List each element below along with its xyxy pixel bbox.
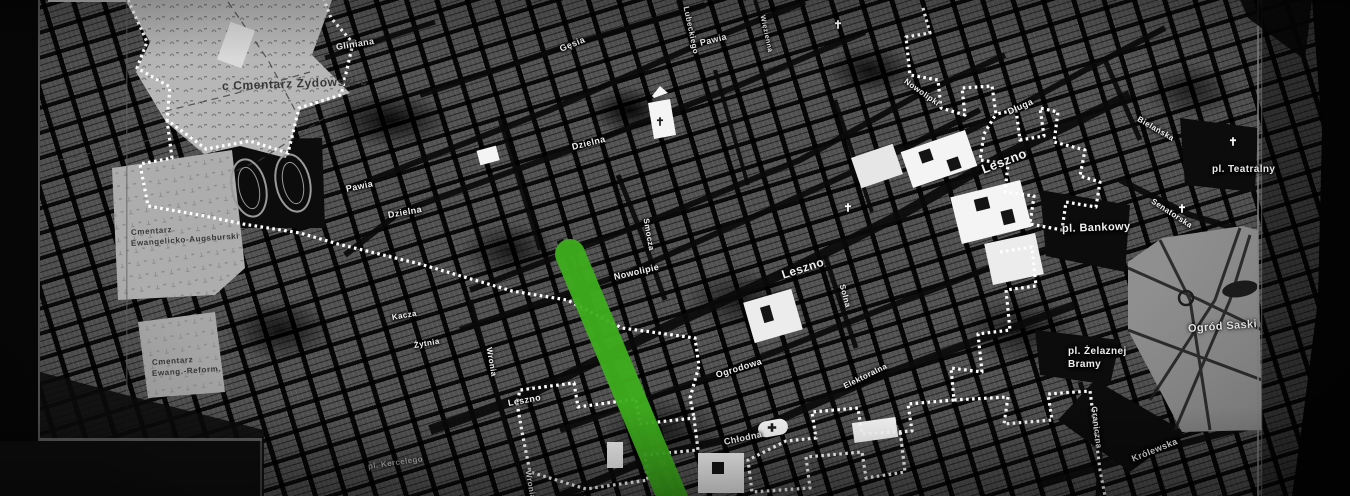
map-page: GlinianaGęsiaLubeckiegoPawiaWięziennaDzi… [0,0,1350,496]
vignette-shading [0,0,1350,496]
